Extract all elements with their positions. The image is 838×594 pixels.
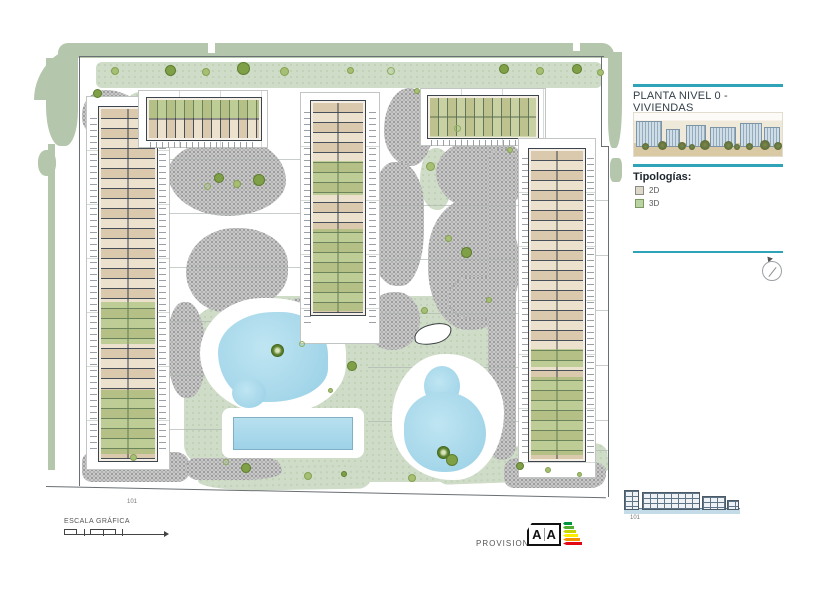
north-arrow-needle [768,267,776,277]
tree-icon [499,64,509,74]
tree-icon [572,64,582,74]
energy-rating-icon: A A [527,521,579,549]
terrace-grid-line [368,313,518,314]
typology-3d-zone [313,229,363,310]
balcony-strip [587,158,594,454]
thumbnail-vegetation [678,142,686,150]
terrace-grid-line [168,159,308,160]
energy-bar-e [563,538,580,541]
tree-icon [280,67,289,76]
paving-area [168,138,286,216]
energy-bar-c [563,530,576,533]
elevation-block [624,490,639,510]
energy-bar-d [563,534,578,537]
panel-rule-bottom [633,251,783,253]
tree-icon [93,89,102,98]
tree-icon [414,88,420,94]
tree-icon [577,472,582,477]
verge-notch [208,43,215,53]
legend-item-2d: 2D [635,186,659,195]
site-boundary-right-2 [608,146,609,497]
thumbnail-vegetation [689,144,695,150]
legend-label-2d: 2D [649,186,659,195]
legend-item-3d: 3D [635,199,659,208]
panel-rule-mid [633,164,783,167]
thumbnail-vegetation [658,141,667,150]
legend-title: Tipologías: [633,171,691,183]
thumbnail-vegetation [774,142,782,150]
tree-icon [536,67,544,75]
typology-3d-zone [313,161,363,195]
paving-area [186,458,282,480]
tree-icon [271,344,284,357]
verge-notch [573,43,580,51]
drawing-sheet: 101 PLANTA NIVEL 0 - VIVIENDAS Tipología… [0,0,838,594]
green-verge-right-2 [610,158,622,182]
tree-icon [299,341,305,347]
energy-letter: A [532,527,541,542]
plan-marker: 101 [127,499,137,505]
graphic-scale-bar [64,529,374,541]
tree-icon [597,69,604,76]
tree-icon [304,472,312,480]
scale-end-arrow [164,531,169,537]
tree-icon [214,173,224,183]
green-strip-left [48,144,55,470]
tree-icon [545,467,551,473]
tree-icon [328,388,333,393]
elevation-block [642,492,700,510]
terrace-grid-line [168,213,308,214]
green-verge-right [608,52,622,148]
scale-baseline [64,534,164,535]
tree-icon [408,474,416,482]
north-arrow-icon [760,256,784,282]
building-top-right-bar [427,95,539,139]
tree-icon [237,62,250,75]
balcony-strip [150,142,258,148]
energy-bar-a [563,522,572,525]
project-render-thumbnail [633,112,783,157]
legend-swatch-3d [635,199,644,208]
building-mid-tower [310,100,366,316]
site-boundary-left [79,56,80,486]
building-top-left-bar [146,97,262,141]
tree-icon [165,65,176,76]
building-elevation-drawing: 101 [622,486,744,520]
tree-icon [233,180,241,188]
tree-icon [507,147,513,153]
tree-icon [253,174,265,186]
tree-icon [446,454,458,466]
tree-icon [341,471,347,477]
terrace-grid-line [368,259,518,260]
tree-icon [461,247,472,258]
energy-house-outline: A A [527,523,561,546]
tree-icon [111,67,119,75]
energy-letter: A [547,527,556,542]
tree-icon [347,67,354,74]
thumbnail-vegetation [700,140,710,150]
typology-3d-zone [531,377,583,455]
energy-bar-f [563,542,582,545]
elevation-block [702,496,726,510]
lap-pool [233,417,353,450]
tree-icon [486,297,492,303]
building-right-tower [528,148,586,462]
tree-icon [204,183,211,190]
typology-3d-zone [531,349,583,368]
tree-icon [130,454,137,461]
typology-3d-zone [430,98,536,137]
typology-3d-zone [101,302,155,344]
tree-icon [516,462,524,470]
balcony-strip [159,118,166,452]
title-panel: PLANTA NIVEL 0 - VIVIENDAS Tipologías: 2… [633,60,783,520]
page-title: PLANTA NIVEL 0 - VIVIENDAS [633,90,783,114]
tree-icon [421,307,428,314]
typology-3d-zone [149,100,259,118]
pool-left-lobe [232,378,266,408]
elevation-marker: 101 [630,515,640,521]
tree-icon [426,162,435,171]
balcony-strip [369,112,376,328]
typology-3d-zone [101,390,155,454]
tree-icon [202,68,210,76]
tree-icon [223,459,229,465]
energy-bar-b [563,526,574,529]
site-boundary-top [80,56,604,57]
tree-icon [445,235,452,242]
legend-label-3d: 3D [649,199,659,208]
tree-icon [387,67,395,75]
legend-swatch-2d [635,186,644,195]
thumbnail-vegetation [724,141,733,150]
thumbnail-vegetation [760,140,770,150]
green-bulb-left [38,150,56,176]
balcony-strip [90,118,97,452]
green-verge-left [46,58,78,146]
thumbnail-vegetation [746,143,753,150]
thumbnail-vegetation [642,143,649,150]
elevation-block [727,500,739,510]
tree-icon [454,125,461,132]
tree-icon [347,361,357,371]
pool-right [404,392,486,472]
energy-letter-divider [544,528,545,541]
thumbnail-vegetation [734,144,740,150]
north-arrow-dial [762,261,782,281]
panel-rule-top [633,84,783,87]
terrace-grid-line [168,267,308,268]
terrace-grid-line [368,205,518,206]
tree-icon [241,463,251,473]
scale-label: ESCALA GRÁFICA [64,518,130,525]
building-left-tower [98,106,158,462]
